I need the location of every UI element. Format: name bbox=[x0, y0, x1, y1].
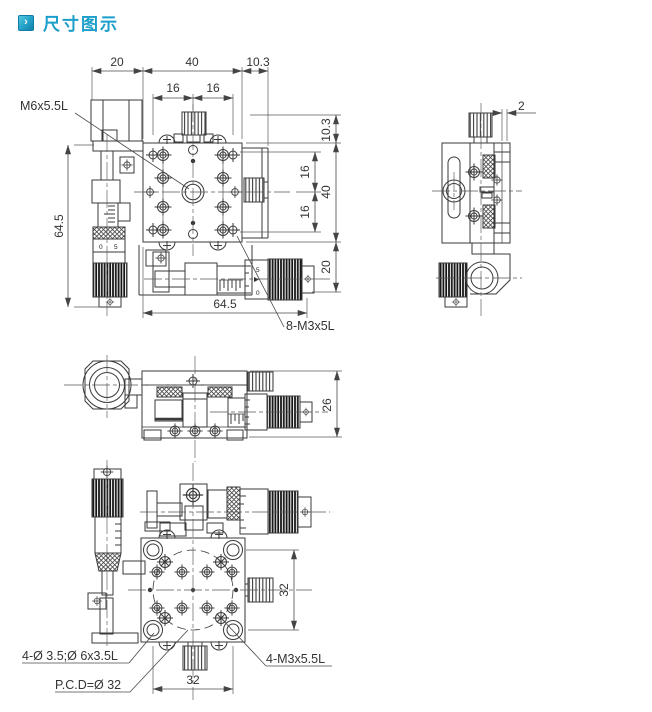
dim-right-40: 40 bbox=[319, 185, 333, 199]
bottom-view-dimension-lines bbox=[153, 550, 294, 689]
front-view-drawing bbox=[83, 361, 312, 440]
dim-bottom-32: 32 bbox=[186, 673, 200, 687]
dim-bottom-64-5: 64.5 bbox=[213, 297, 237, 311]
label-corner-holes: 4-Ø 3.5;Ø 6x3.5L bbox=[22, 649, 118, 663]
top-view-left-micrometer bbox=[91, 100, 143, 307]
front-view-texts: 26 bbox=[320, 398, 334, 412]
dim-top-20: 20 bbox=[110, 55, 124, 69]
top-view-right-knob bbox=[242, 148, 268, 238]
stage-dimension-drawing: 20 40 10.3 16 16 64.5 64.5 10.3 16 16 40… bbox=[0, 0, 652, 712]
dim-right-20: 20 bbox=[319, 260, 333, 274]
thimble-scale-0: 0 bbox=[99, 244, 103, 251]
bottom-view-texts: 32 32 4-Ø 3.5;Ø 6x3.5L P.C.D=Ø 32 4-M3x5… bbox=[22, 583, 325, 692]
label-center-hole: M6x5.5L bbox=[20, 99, 68, 113]
thimble-scale-0b: 0 bbox=[256, 290, 260, 297]
dim-right-16b: 16 bbox=[298, 205, 312, 219]
bottom-view-vertical-micrometer bbox=[88, 466, 145, 643]
bottom-view-horizontal-micrometer bbox=[145, 484, 311, 536]
top-view-drawing bbox=[91, 100, 314, 307]
dim-top-16b: 16 bbox=[206, 81, 220, 95]
side-view-texts: 2 bbox=[518, 99, 525, 113]
top-view-top-knob bbox=[174, 112, 213, 142]
dim-right-10-3: 10.3 bbox=[319, 118, 333, 142]
dimension-diagram-page: › 尺寸图示 bbox=[0, 0, 652, 712]
label-pcd: P.C.D=Ø 32 bbox=[55, 678, 121, 692]
top-view-stage-plate bbox=[143, 135, 242, 250]
dim-right-16a: 16 bbox=[298, 165, 312, 179]
label-m3-holes: 4-M3x5.5L bbox=[266, 652, 325, 666]
dim-height-26: 26 bbox=[320, 398, 334, 412]
dim-left-64-5: 64.5 bbox=[52, 214, 66, 238]
dim-right-32: 32 bbox=[277, 583, 291, 597]
bottom-view-drawing bbox=[88, 466, 311, 670]
side-view-extension-lines bbox=[502, 109, 507, 141]
dim-top-16a: 16 bbox=[166, 81, 180, 95]
top-view-bottom-micrometer bbox=[139, 245, 314, 300]
bottom-view-bottom-knob bbox=[183, 642, 207, 670]
thimble-scale-5b: 5 bbox=[256, 267, 260, 274]
dim-plate-2: 2 bbox=[518, 99, 525, 113]
thimble-scale-5: 5 bbox=[114, 244, 118, 251]
label-screw-holes: 8-M3x5L bbox=[286, 319, 335, 333]
dim-top-10-3: 10.3 bbox=[246, 55, 270, 69]
dim-top-40: 40 bbox=[185, 55, 199, 69]
